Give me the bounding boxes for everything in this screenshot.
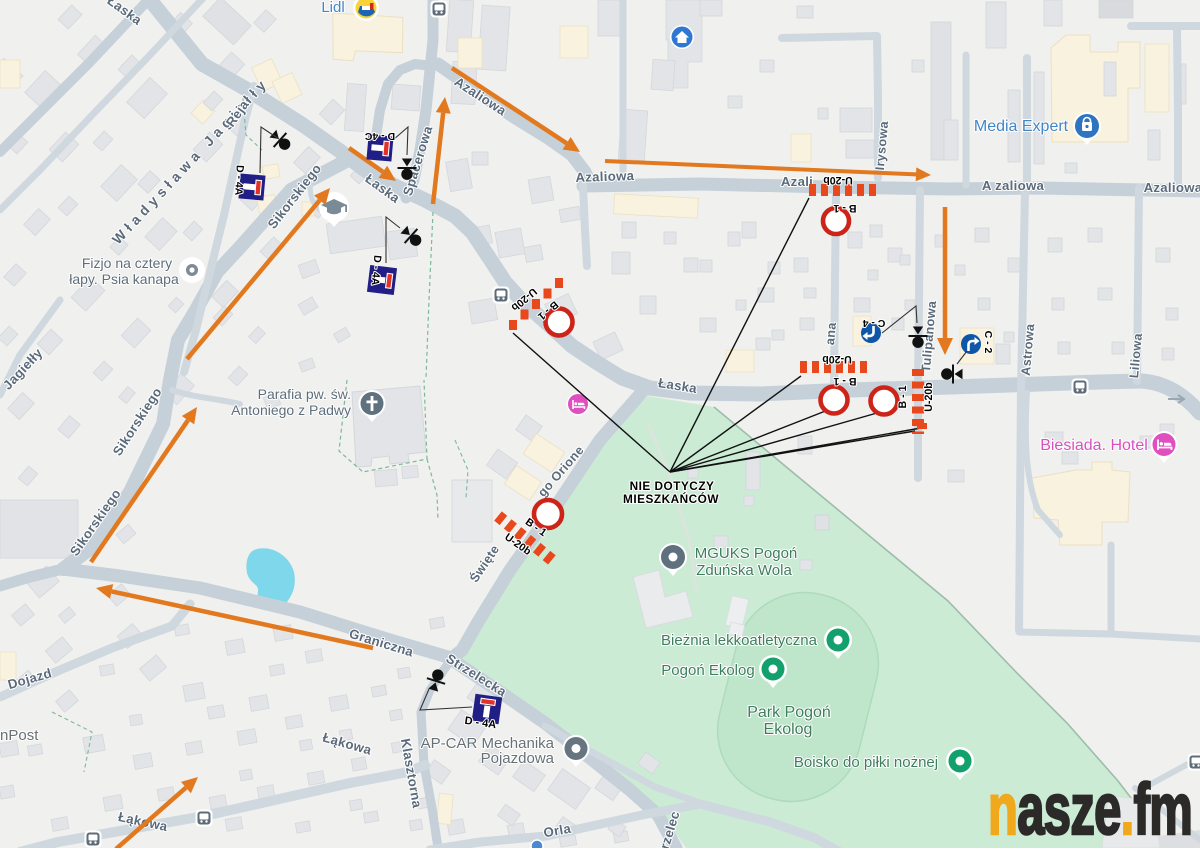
svg-text:D - 4A: D - 4A	[232, 165, 246, 196]
svg-text:nPost: nPost	[0, 727, 39, 744]
svg-text:C - 4: C - 4	[862, 317, 885, 329]
svg-text:Azali: Azali	[781, 174, 813, 189]
svg-text:U-20b: U-20b	[823, 174, 853, 186]
svg-text:C - 2: C - 2	[982, 331, 994, 354]
svg-text:Antoniego z Padwy: Antoniego z Padwy	[231, 402, 351, 418]
svg-text:Pojazdowa: Pojazdowa	[481, 750, 555, 767]
svg-text:U-20b: U-20b	[923, 382, 935, 412]
svg-text:Bieżnia lekkoatletyczna: Bieżnia lekkoatletyczna	[661, 632, 818, 649]
svg-text:Park Pogoń: Park Pogoń	[747, 704, 831, 721]
svg-text:Azaliowa: Azaliowa	[575, 168, 635, 185]
svg-text:MIESZKAŃCÓW: MIESZKAŃCÓW	[623, 492, 719, 506]
svg-text:Parafia pw. św.: Parafia pw. św.	[258, 386, 351, 402]
svg-text:Ekolog: Ekolog	[764, 721, 813, 738]
svg-text:B - 1: B - 1	[833, 202, 856, 214]
svg-text:NIE DOTYCZY: NIE DOTYCZY	[630, 479, 715, 493]
svg-text:Pogoń Ekolog: Pogoń Ekolog	[661, 662, 754, 679]
svg-text:łapy. Psia kanapa: łapy. Psia kanapa	[69, 271, 179, 287]
svg-text:Fizjo na cztery: Fizjo na cztery	[82, 255, 172, 271]
svg-text:B - 1: B - 1	[897, 385, 909, 408]
svg-text:Boisko do piłki nożnej: Boisko do piłki nożnej	[794, 754, 938, 771]
svg-text:B - 1: B - 1	[833, 375, 856, 387]
svg-text:ana: ana	[823, 321, 839, 346]
svg-text:A zaliowa: A zaliowa	[982, 178, 1045, 193]
svg-text:Lidl: Lidl	[321, 0, 344, 16]
svg-text:D - 4C: D - 4C	[364, 130, 395, 142]
svg-text:Azaliowa: Azaliowa	[1144, 180, 1200, 195]
svg-text:Biesiada. Hotel: Biesiada. Hotel	[1040, 437, 1148, 454]
svg-text:MGUKS Pogoń: MGUKS Pogoń	[695, 545, 798, 562]
svg-text:U-20b: U-20b	[822, 353, 852, 365]
svg-text:Zduńska Wola: Zduńska Wola	[696, 562, 792, 579]
svg-text:Media Expert: Media Expert	[974, 118, 1069, 135]
